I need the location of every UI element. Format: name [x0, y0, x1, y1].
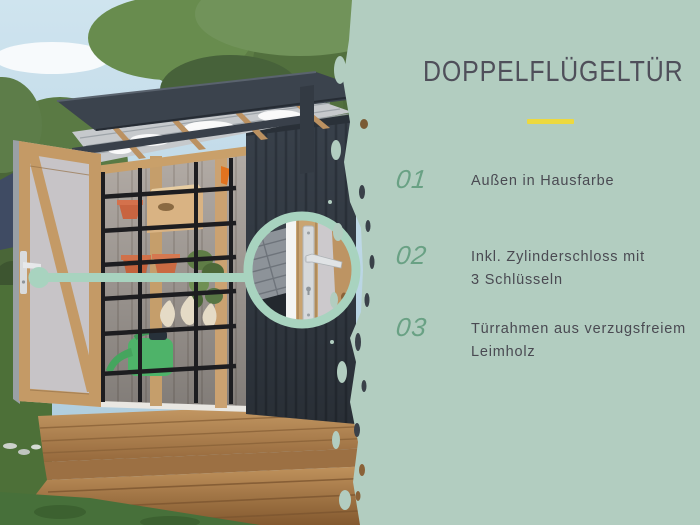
page-title: DOPPELFLÜGELTÜR — [423, 56, 681, 89]
feature-number-1: 01 — [394, 164, 441, 195]
corner-post — [300, 85, 314, 174]
feature-text-2: Inkl. Zylinderschloss mit 3 Schlüsseln — [471, 246, 645, 292]
feature-number-3: 03 — [394, 312, 441, 343]
feature-item-2: 02 Inkl. Zylinderschloss mit 3 Schlüssel… — [396, 246, 686, 292]
feature-text-3: Türrahmen aus verzugsfreiem Leimholz — [471, 318, 686, 364]
feature-text-2-line-2: 3 Schlüsseln — [471, 269, 645, 292]
feature-text-1: Außen in Hausfarbe — [471, 170, 614, 193]
butterfly-speck — [360, 119, 368, 129]
title-divider — [527, 119, 574, 124]
feature-text-3-line-2: Leimholz — [471, 341, 686, 364]
feature-number-2: 02 — [394, 240, 441, 271]
feature-item-1: 01 Außen in Hausfarbe — [396, 170, 686, 195]
feature-text-1-line-1: Außen in Hausfarbe — [471, 170, 614, 193]
feature-text-2-line-1: Inkl. Zylinderschloss mit — [471, 246, 645, 269]
connector-dot — [29, 267, 50, 288]
feature-text-3-line-1: Türrahmen aus verzugsfreiem — [471, 318, 686, 341]
product-feature-card: DOPPELFLÜGELTÜR 01 Außen in Hausfarbe 02… — [0, 0, 700, 525]
feature-item-3: 03 Türrahmen aus verzugsfreiem Leimholz — [396, 318, 686, 364]
